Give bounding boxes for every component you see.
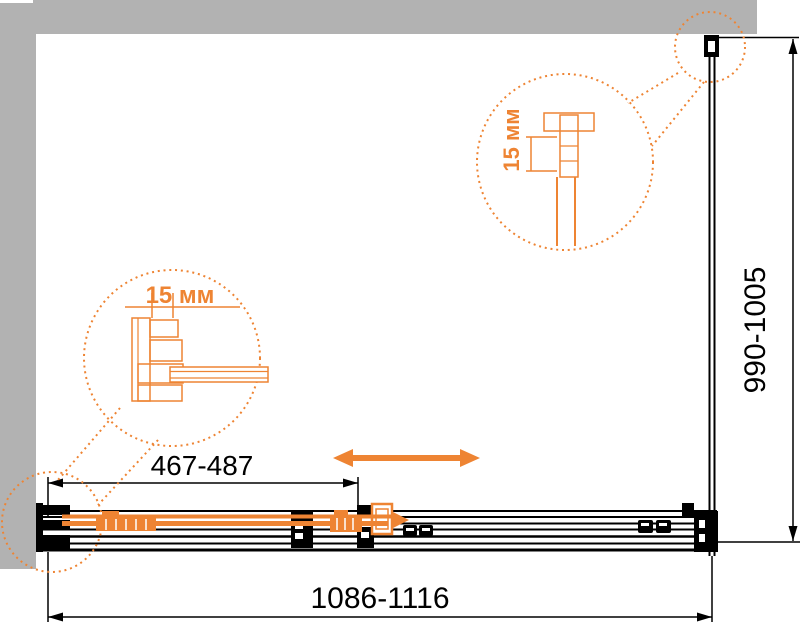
- wall-profile-left: [36, 503, 70, 552]
- door-width-label: 467-487: [151, 450, 254, 481]
- door-clamp-left: [96, 511, 156, 531]
- door-roller-bracket: [372, 504, 392, 534]
- left-detail-label: 15 мм: [146, 282, 215, 309]
- callout-connectors-left: [58, 408, 158, 505]
- technical-drawing: 990-1005 1086-1116 467-487: [0, 0, 800, 623]
- dimension-door-width: 467-487: [48, 450, 358, 516]
- side-glass-panel: [710, 55, 715, 556]
- dimension-bottom-width: 1086-1116: [48, 552, 712, 622]
- detail-profile-right: 15 мм: [499, 108, 594, 246]
- side-depth-label: 990-1005: [739, 267, 772, 394]
- slide-direction-arrow: [333, 449, 480, 467]
- wall-bracket-top: [704, 35, 719, 57]
- detail-profile-left: 15 мм: [125, 282, 268, 401]
- bottom-width-label: 1086-1116: [310, 582, 449, 615]
- callout-connectors-right: [628, 73, 704, 146]
- shower-enclosure-diagram: 990-1005 1086-1116 467-487: [0, 0, 800, 623]
- dimension-side-depth: 990-1005: [717, 38, 800, 543]
- top-detail-label: 15 мм: [499, 108, 524, 171]
